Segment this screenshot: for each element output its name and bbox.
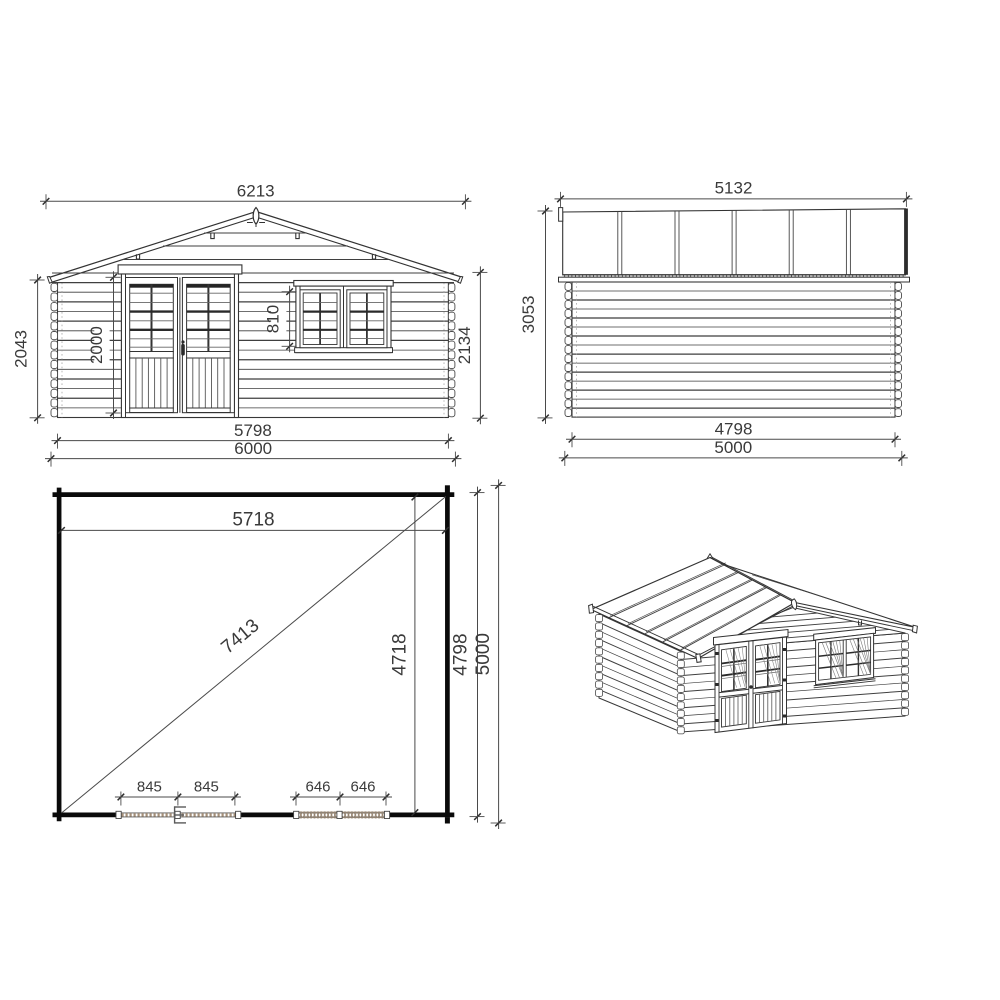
svg-text:6000: 6000	[234, 439, 272, 458]
svg-text:4718: 4718	[390, 633, 411, 675]
svg-text:5000: 5000	[473, 633, 494, 675]
svg-text:5000: 5000	[714, 438, 752, 457]
svg-text:4798: 4798	[451, 633, 472, 675]
svg-text:845: 845	[194, 778, 219, 795]
svg-text:646: 646	[350, 778, 375, 795]
svg-text:845: 845	[137, 778, 162, 795]
svg-text:6213: 6213	[237, 182, 275, 201]
svg-text:646: 646	[305, 778, 330, 795]
svg-text:5718: 5718	[232, 510, 274, 531]
svg-text:2000: 2000	[87, 326, 106, 364]
svg-text:810: 810	[264, 305, 283, 333]
svg-text:2043: 2043	[12, 330, 31, 368]
svg-text:3053: 3053	[519, 295, 538, 333]
svg-text:5132: 5132	[715, 179, 753, 198]
svg-text:2134: 2134	[455, 326, 474, 364]
svg-text:4798: 4798	[715, 419, 753, 438]
svg-text:5798: 5798	[234, 421, 272, 440]
